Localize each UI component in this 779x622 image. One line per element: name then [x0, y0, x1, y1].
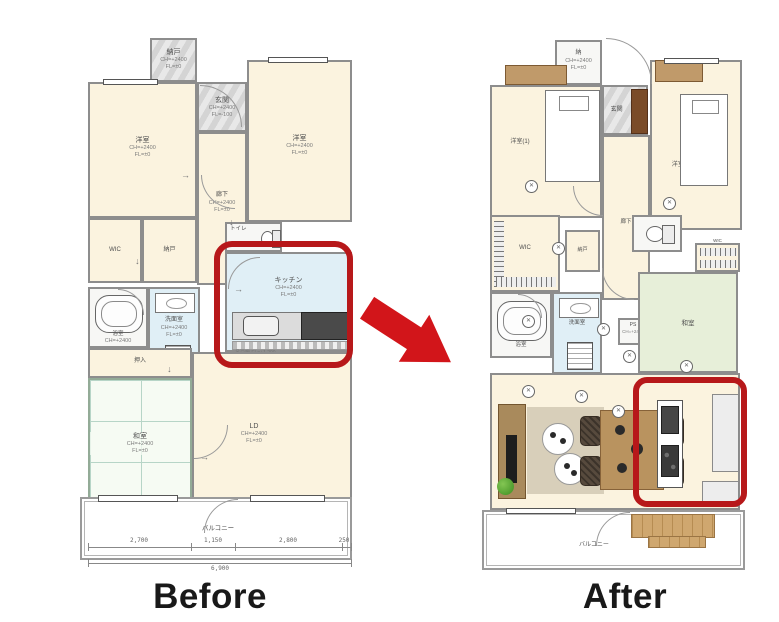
- wood-deck-step: [648, 536, 706, 548]
- vanity: [559, 298, 599, 318]
- door-swing-arrow: →: [181, 171, 190, 180]
- room-name: 洗面室: [554, 320, 600, 327]
- coffee-table: [542, 423, 574, 455]
- room-fl: FL=±0: [199, 207, 245, 214]
- tv: [506, 435, 517, 483]
- ceiling-light-icon: ✕: [522, 385, 535, 398]
- room-name: 洗面室: [150, 317, 198, 325]
- window: [268, 57, 328, 63]
- dining-chair: [580, 416, 602, 446]
- closet-bar: [505, 65, 567, 85]
- room-name: 和室: [90, 432, 190, 441]
- room-name: 和室: [640, 320, 736, 328]
- room-ch: CH=+2400: [90, 145, 195, 152]
- room-fl: FL=±0: [150, 332, 198, 339]
- before-room-washitsu: 和室 CH=+2400 FL=±0: [88, 378, 192, 500]
- room-name: 洋室(1): [494, 139, 546, 147]
- room-ch: CH=+2400: [90, 338, 146, 345]
- dim-tick: [235, 543, 236, 551]
- bed: [680, 94, 728, 186]
- room-ch: CH=+2400: [152, 57, 195, 64]
- after-caption: After: [535, 577, 715, 617]
- before-to-after-arrow: [353, 293, 465, 377]
- room-fl: FL=±0: [152, 64, 195, 71]
- room-fl: FL=±0: [90, 448, 190, 455]
- window: [103, 79, 158, 85]
- dimension-line: [88, 547, 352, 548]
- dim-tick: [342, 543, 343, 551]
- ceiling-light-icon: ✕: [680, 360, 693, 373]
- window: [664, 58, 719, 64]
- ceiling-light-icon: ✕: [597, 323, 610, 336]
- dim-segment: 250: [330, 537, 358, 544]
- dim-tick: [88, 543, 89, 551]
- ceiling-light-icon: ✕: [525, 180, 538, 193]
- before-room-closet: 押入: [88, 348, 192, 378]
- after-kitchen-highlight: [633, 377, 747, 507]
- plant: [497, 478, 514, 495]
- room-name: 洋室: [90, 136, 195, 145]
- before-room-bedroom-left: 洋室 CH=+2400 FL=±0: [88, 82, 197, 218]
- dim-tick: [351, 543, 352, 551]
- door-swing-arrow: →: [134, 257, 143, 266]
- ceiling-light-icon: ✕: [663, 197, 676, 210]
- before-floorplan: 納戸 CH=+2400 FL=±0 玄関 CH=+2400 FL=-100 洋室…: [78, 25, 368, 575]
- after-room-wic-left: WIC: [490, 215, 560, 292]
- ceiling-light-icon: ✕: [552, 242, 565, 255]
- room-name: 洋室: [249, 134, 350, 143]
- pillow: [692, 100, 719, 114]
- room-fl: FL=±0: [90, 152, 195, 159]
- room-name: 納戸: [152, 48, 195, 57]
- ceiling-light-icon: ✕: [623, 350, 636, 363]
- dimension-total-line: [88, 563, 352, 564]
- wood-deck: [631, 514, 715, 538]
- door-swing-arrow: →: [228, 218, 237, 227]
- room-ch: CH=+2400: [150, 325, 198, 332]
- renovation-before-after-comparison: 納戸 CH=+2400 FL=±0 玄関 CH=+2400 FL=-100 洋室…: [0, 0, 779, 622]
- after-floorplan: 納 CH=+2400 FL=±0 玄関 洋室(1) 洋室(2): [478, 18, 758, 578]
- before-caption: Before: [115, 577, 305, 617]
- room-name: 納戸: [144, 247, 195, 255]
- dim-segment: 2,800: [264, 537, 312, 544]
- room-name: WIC: [697, 238, 738, 244]
- hanger-rack: [496, 277, 556, 287]
- room-fl: FL=±0: [249, 150, 350, 157]
- before-room-wic: WIC: [88, 218, 142, 283]
- dim-tick: [88, 559, 89, 567]
- window: [250, 495, 325, 502]
- hanger-rack: [700, 248, 737, 256]
- after-room-washroom: 洗面室: [552, 292, 602, 374]
- room-ch: CH=+2400: [90, 441, 190, 448]
- room-name: 玄関: [604, 107, 629, 115]
- vanity: [155, 293, 195, 313]
- dim-segment: 2,700: [116, 537, 162, 544]
- hanger-rack: [700, 260, 737, 268]
- room-name: WIC: [492, 245, 558, 253]
- door-arc: [606, 38, 652, 84]
- after-room-storage-small: 納戸: [565, 230, 600, 272]
- washing-machine: [567, 342, 593, 370]
- dim-tick: [191, 543, 192, 551]
- before-room-bedroom-right: 洋室 CH=+2400 FL=±0: [247, 60, 352, 222]
- room-name: 納: [557, 50, 600, 58]
- room-name: 納戸: [567, 247, 598, 254]
- door-swing-arrow: →: [200, 453, 209, 462]
- after-room-toilet: [632, 215, 682, 252]
- room-name: WIC: [90, 247, 140, 255]
- dim-total: 6,900: [190, 565, 250, 572]
- room-name: トイレ: [230, 226, 247, 233]
- door-swing-arrow: →: [166, 365, 175, 374]
- room-name: 浴室: [90, 331, 146, 338]
- bed: [545, 90, 600, 182]
- before-kitchen-highlight: [214, 241, 353, 368]
- before-room-storage-top: 納戸 CH=+2400 FL=±0: [150, 38, 197, 82]
- shoe-cabinet: [631, 89, 648, 134]
- ceiling-light-icon: ✕: [522, 315, 535, 328]
- window: [506, 508, 576, 514]
- after-room-wic-right: WIC: [695, 243, 740, 272]
- dim-tick: [351, 559, 352, 567]
- ceiling-light-icon: ✕: [612, 405, 625, 418]
- before-room-storage2: 納戸: [142, 218, 197, 283]
- room-ch: CH=+2400: [249, 143, 350, 150]
- window: [98, 495, 178, 502]
- dim-segment: 1,150: [191, 537, 235, 544]
- dining-chair: [580, 456, 602, 486]
- room-name: 浴室: [492, 342, 550, 349]
- toilet-tank: [662, 225, 675, 244]
- after-room-washitsu: 和室: [638, 272, 738, 373]
- room-ch: CH=+2400: [557, 58, 600, 65]
- after-room-entrance: 玄関: [602, 85, 648, 135]
- ceiling-light-icon: ✕: [575, 390, 588, 403]
- pillow: [559, 96, 589, 111]
